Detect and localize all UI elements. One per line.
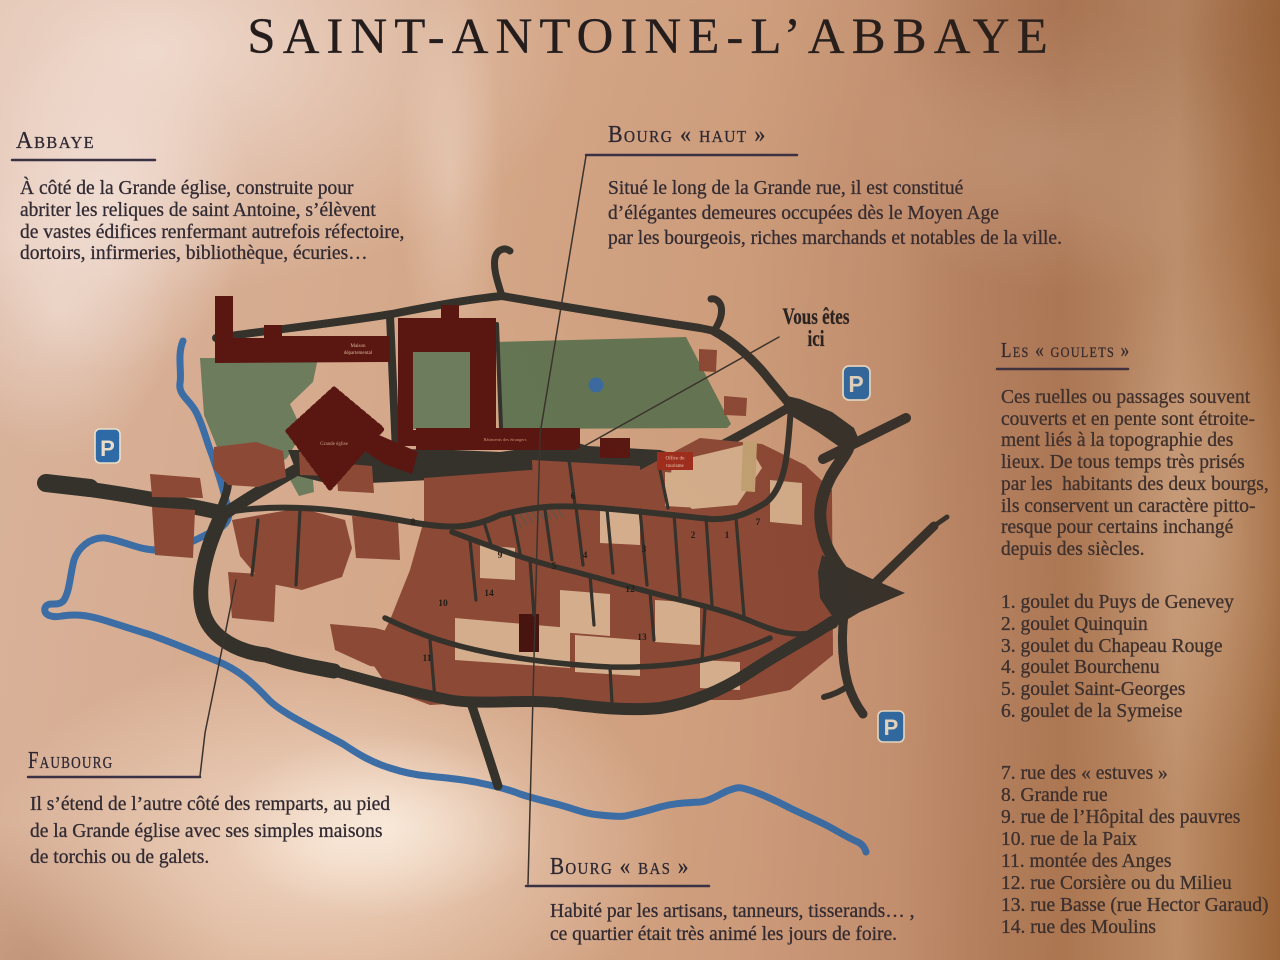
svg-text:P: P: [884, 715, 899, 740]
svg-text:14: 14: [484, 589, 494, 599]
svg-text:4: 4: [583, 551, 588, 561]
svg-text:tourisme: tourisme: [666, 464, 684, 469]
svg-text:13: 13: [637, 633, 647, 643]
svg-text:5: 5: [552, 562, 557, 572]
svg-text:7: 7: [756, 518, 761, 528]
svg-text:Bâtiments des étrangers: Bâtiments des étrangers: [484, 437, 527, 442]
svg-text:11: 11: [423, 654, 432, 664]
svg-text:1: 1: [725, 531, 730, 541]
svg-text:2: 2: [691, 531, 696, 541]
svg-text:6: 6: [571, 492, 576, 502]
svg-text:9: 9: [498, 551, 503, 561]
svg-text:P: P: [848, 371, 863, 397]
svg-text:Office du: Office du: [666, 457, 685, 462]
svg-text:P: P: [100, 436, 115, 461]
svg-text:3: 3: [642, 545, 647, 555]
svg-text:Maison: Maison: [351, 344, 367, 349]
svg-text:10: 10: [438, 599, 448, 609]
svg-text:départemental: départemental: [344, 351, 373, 356]
svg-text:Grande église: Grande église: [320, 442, 348, 447]
svg-text:8: 8: [411, 518, 416, 528]
svg-text:12: 12: [625, 585, 635, 595]
